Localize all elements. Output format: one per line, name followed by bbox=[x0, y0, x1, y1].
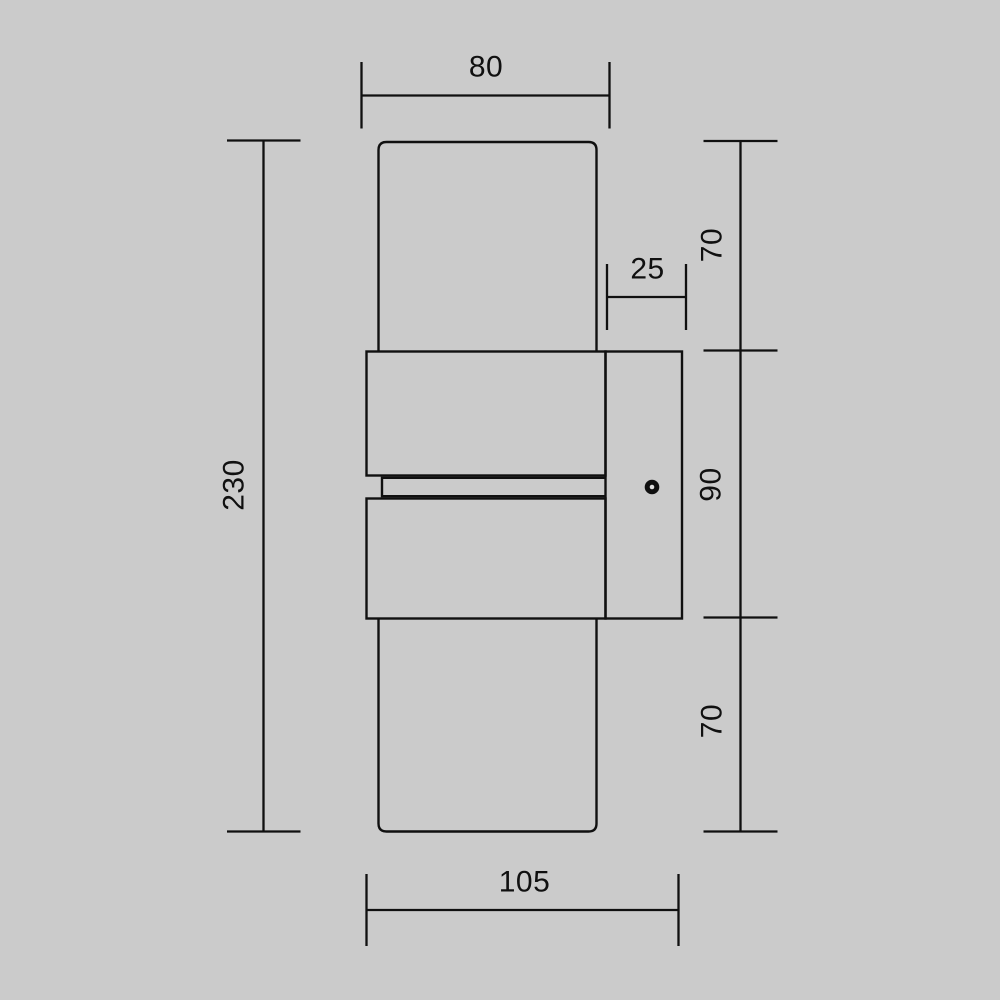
svg-text:25: 25 bbox=[630, 253, 664, 286]
svg-text:230: 230 bbox=[218, 459, 251, 511]
svg-text:70: 70 bbox=[696, 704, 729, 738]
svg-text:105: 105 bbox=[499, 866, 551, 899]
svg-text:70: 70 bbox=[696, 228, 729, 262]
svg-text:90: 90 bbox=[695, 467, 728, 501]
svg-text:80: 80 bbox=[469, 51, 503, 84]
